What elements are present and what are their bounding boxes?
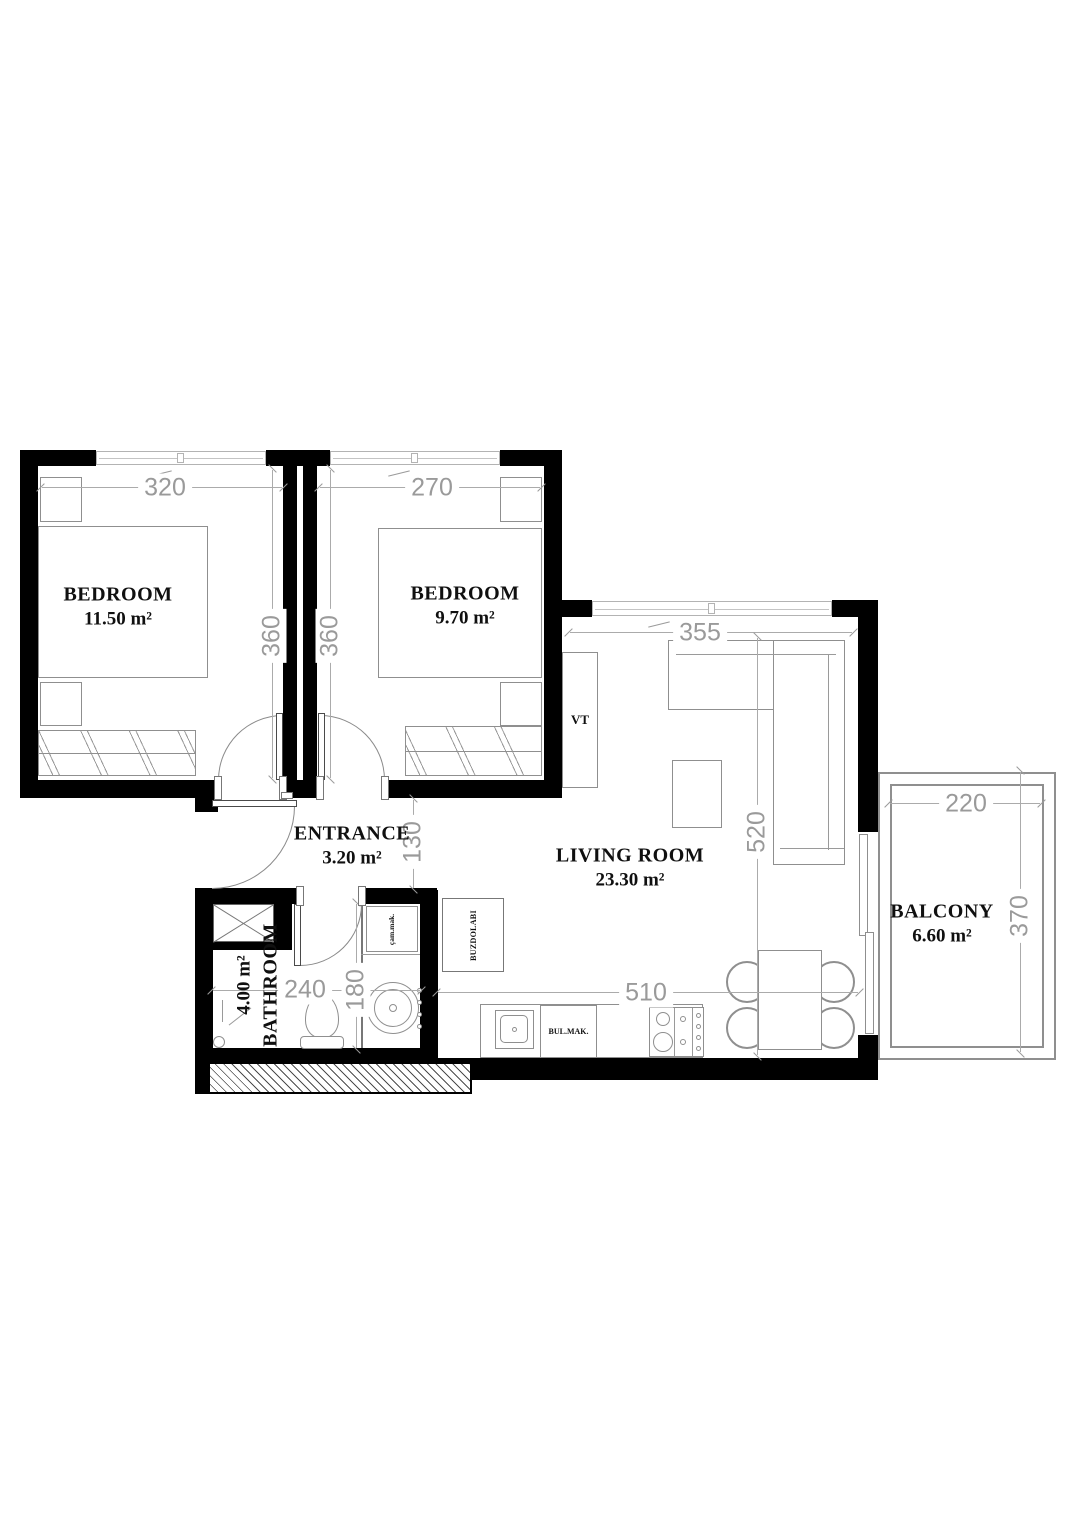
wall-bathroom-top-left bbox=[195, 888, 300, 904]
wardrobe-bedroom2 bbox=[405, 726, 542, 776]
room-area: 23.30 m² bbox=[556, 869, 704, 894]
window-bedroom1 bbox=[96, 451, 266, 465]
room-area: 6.60 m² bbox=[890, 925, 994, 950]
room-name: LIVING ROOM bbox=[556, 843, 704, 869]
door-leaf-bedroom1 bbox=[276, 713, 283, 780]
corridor-hatch-strip bbox=[208, 1062, 472, 1094]
door-handle-entrance bbox=[281, 792, 293, 799]
dishwasher-label: BUL.MAK. bbox=[549, 1027, 589, 1036]
balcony-sliding-door-leaf bbox=[865, 932, 874, 1034]
stove-burner bbox=[653, 1032, 673, 1052]
stove-knob bbox=[696, 1024, 701, 1029]
door-jamb bbox=[296, 886, 304, 906]
door-arc-bathroom bbox=[300, 904, 362, 966]
room-name: BEDROOM bbox=[63, 582, 172, 608]
room-area: 3.20 m² bbox=[294, 847, 410, 872]
dim-bathroom-width: 240 bbox=[278, 976, 332, 1005]
room-area: 4.00 m² bbox=[233, 923, 258, 1047]
dishwasher: BUL.MAK. bbox=[540, 1005, 597, 1058]
room-area: 11.50 m² bbox=[63, 608, 172, 633]
window-mullion bbox=[177, 453, 184, 463]
door-jamb bbox=[381, 776, 389, 800]
bathroom-sink-drain bbox=[389, 1004, 397, 1012]
window-mullion bbox=[708, 603, 715, 614]
fridge: BUZDOLABI bbox=[442, 898, 504, 972]
window-living bbox=[592, 601, 832, 616]
wall-top-left-pier bbox=[20, 450, 96, 466]
room-label-living: LIVING ROOM 23.30 m² bbox=[556, 843, 704, 894]
room-label-balcony: BALCONY 6.60 m² bbox=[890, 899, 994, 950]
dim-bedroom1-depth: 360 bbox=[258, 609, 287, 663]
balcony-sliding-door-leaf bbox=[859, 834, 868, 936]
faucet-dot bbox=[417, 1000, 422, 1005]
floor-plan: VT BUL.MAK. BUZDOLABI çam.mak. bbox=[0, 0, 1080, 1540]
dim-living-depth: 520 bbox=[743, 805, 772, 859]
door-jamb bbox=[316, 776, 324, 800]
washing-machine-label: çam.mak. bbox=[388, 913, 397, 944]
nightstand bbox=[40, 477, 82, 522]
dim-living-width: 355 bbox=[673, 619, 727, 648]
dim-bathroom-depth: 180 bbox=[342, 963, 371, 1017]
room-name: BALCONY bbox=[890, 899, 994, 925]
stove-burner bbox=[680, 1039, 686, 1045]
shower-line bbox=[222, 1000, 223, 1022]
nightstand bbox=[40, 682, 82, 726]
wall-bathroom-left bbox=[195, 888, 213, 1062]
room-label-bedroom1: BEDROOM 11.50 m² bbox=[63, 582, 172, 633]
bathroom-counter-line bbox=[361, 954, 420, 955]
wall-bedroom2-right bbox=[544, 450, 562, 798]
shower-head bbox=[213, 1036, 225, 1048]
stove-divider bbox=[674, 1008, 675, 1056]
wall-top-mid-pier bbox=[266, 450, 330, 466]
tv-unit-label: VT bbox=[571, 712, 589, 728]
wardrobe-shelf-line bbox=[39, 753, 195, 754]
door-arc-bedroom1 bbox=[218, 715, 283, 780]
stove-knob bbox=[696, 1046, 701, 1051]
door-arc-entrance bbox=[212, 806, 295, 889]
room-label-bathroom: 4.00 m² BATHROOM bbox=[233, 923, 284, 1047]
dim-balcony-width: 220 bbox=[939, 790, 993, 819]
stove-burner bbox=[656, 1012, 670, 1026]
coffee-table bbox=[672, 760, 722, 828]
door-leaf-bedroom2 bbox=[318, 713, 325, 780]
sofa-cushion-line bbox=[828, 654, 829, 850]
room-area: 9.70 m² bbox=[410, 607, 519, 632]
stove-knob bbox=[696, 1035, 701, 1040]
dim-balcony-depth: 370 bbox=[1006, 889, 1035, 943]
wardrobe-bedroom1 bbox=[38, 730, 196, 776]
wall-left-exterior bbox=[20, 450, 38, 798]
wall-living-right bbox=[858, 600, 878, 832]
washing-machine: çam.mak. bbox=[366, 906, 418, 952]
fridge-label: BUZDOLABI bbox=[469, 910, 478, 961]
toilet-base bbox=[300, 1036, 344, 1049]
room-name: BEDROOM bbox=[410, 581, 519, 607]
dim-bedroom2-depth: 360 bbox=[316, 609, 345, 663]
tv-unit: VT bbox=[562, 652, 598, 788]
stove-knob bbox=[696, 1013, 701, 1018]
stove-divider bbox=[692, 1008, 693, 1056]
faucet-dot bbox=[417, 1012, 422, 1017]
door-leaf-entrance bbox=[212, 800, 297, 807]
dim-bedroom2-width: 270 bbox=[405, 474, 459, 503]
sofa-cushion-line bbox=[780, 848, 844, 849]
wardrobe-shelf-line bbox=[406, 751, 541, 752]
dim-kitchen-run: 510 bbox=[619, 979, 673, 1008]
room-name: BATHROOM bbox=[257, 923, 283, 1047]
dining-table bbox=[758, 950, 822, 1050]
window-bedroom2 bbox=[330, 451, 500, 465]
nightstand bbox=[500, 477, 542, 522]
room-name: ENTRANCE bbox=[294, 821, 410, 847]
sofa-vertical-section bbox=[773, 640, 845, 865]
wall-living-bottom bbox=[437, 1058, 878, 1080]
stove bbox=[649, 1007, 704, 1057]
room-label-entrance: ENTRANCE 3.20 m² bbox=[294, 821, 410, 872]
dim-bedroom1-width: 320 bbox=[138, 474, 192, 503]
window-tick bbox=[648, 621, 670, 627]
door-jamb bbox=[358, 886, 366, 906]
door-jamb bbox=[214, 776, 222, 800]
wall-bedroom1-bottom bbox=[20, 780, 218, 798]
door-leaf-bathroom bbox=[294, 904, 301, 966]
room-label-bedroom2: BEDROOM 9.70 m² bbox=[410, 581, 519, 632]
wall-bathroom-bottom bbox=[195, 1048, 437, 1062]
kitchen-sink-drain bbox=[512, 1027, 517, 1032]
stove-burner bbox=[680, 1016, 686, 1022]
faucet-dot bbox=[417, 1024, 422, 1029]
sofa-cushion-line bbox=[676, 654, 836, 655]
nightstand bbox=[500, 682, 542, 726]
wall-living-top-left-block bbox=[544, 600, 592, 617]
wall-bathroom-right bbox=[420, 890, 438, 1062]
kitchen-sink bbox=[495, 1010, 534, 1049]
window-mullion bbox=[411, 453, 418, 463]
